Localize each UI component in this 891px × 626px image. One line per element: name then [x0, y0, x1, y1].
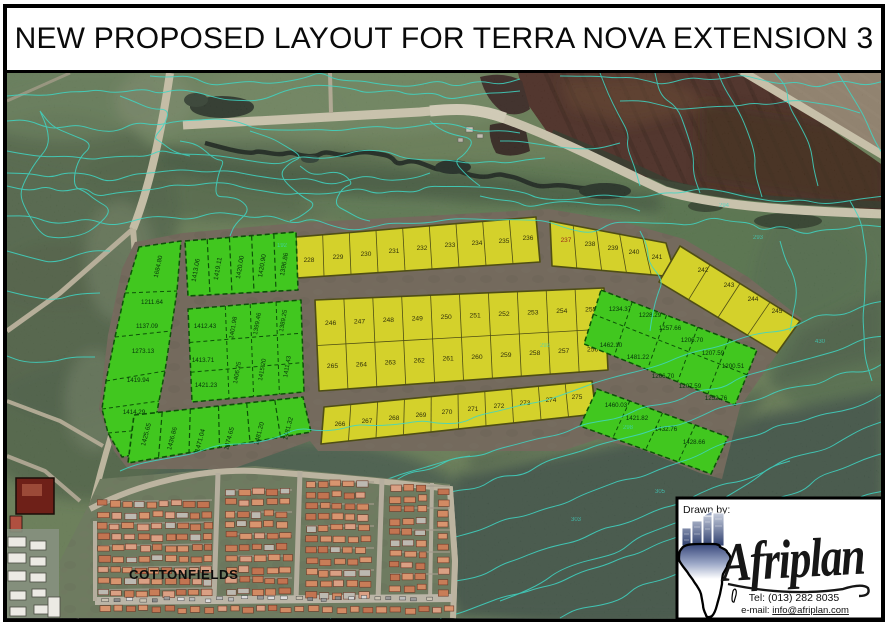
svg-text:1421.23: 1421.23 — [195, 382, 218, 389]
svg-text:1462.10: 1462.10 — [600, 342, 623, 349]
svg-text:292: 292 — [540, 343, 551, 349]
svg-text:1228.29: 1228.29 — [639, 312, 662, 319]
svg-text:Tel: (013) 282 8035: Tel: (013) 282 8035 — [749, 592, 840, 604]
svg-text:247: 247 — [354, 318, 365, 325]
svg-text:237: 237 — [561, 237, 572, 244]
svg-text:262: 262 — [414, 358, 425, 365]
svg-text:Afriplan: Afriplan — [718, 525, 866, 593]
svg-text:1432.76: 1432.76 — [655, 426, 678, 433]
svg-text:265: 265 — [327, 363, 338, 370]
svg-text:1273.13: 1273.13 — [132, 348, 155, 355]
svg-text:1211.64: 1211.64 — [141, 299, 163, 306]
svg-text:1421.82: 1421.82 — [626, 415, 649, 422]
svg-text:1207.59: 1207.59 — [679, 383, 702, 390]
svg-text:264: 264 — [356, 361, 367, 368]
svg-text:229: 229 — [333, 254, 344, 261]
svg-text:1419.94: 1419.94 — [127, 377, 150, 384]
svg-text:271: 271 — [468, 406, 479, 413]
svg-text:241: 241 — [652, 254, 663, 261]
svg-text:COTTONFIELDS: COTTONFIELDS — [129, 567, 239, 582]
svg-text:263: 263 — [385, 359, 396, 366]
svg-text:1257.66: 1257.66 — [659, 325, 682, 332]
svg-text:270: 270 — [442, 409, 453, 416]
svg-text:239: 239 — [608, 245, 619, 252]
svg-text:267: 267 — [362, 418, 373, 425]
svg-text:1137.09: 1137.09 — [136, 323, 158, 330]
svg-text:274: 274 — [546, 397, 557, 404]
svg-text:293: 293 — [753, 235, 764, 241]
svg-text:232: 232 — [417, 245, 428, 252]
svg-text:e-mail: info@afriplan.com: e-mail: info@afriplan.com — [741, 605, 849, 616]
svg-text:258: 258 — [529, 350, 540, 357]
svg-text:238: 238 — [585, 241, 596, 248]
svg-text:260: 260 — [471, 354, 482, 361]
svg-text:266: 266 — [335, 421, 346, 428]
svg-text:257: 257 — [558, 348, 569, 355]
svg-text:1481.22: 1481.22 — [627, 354, 650, 361]
svg-text:275: 275 — [572, 394, 583, 401]
svg-text:245: 245 — [772, 308, 783, 315]
svg-text:254: 254 — [556, 308, 567, 315]
svg-text:269: 269 — [416, 412, 427, 419]
svg-text:1207.59: 1207.59 — [702, 350, 725, 357]
svg-text:1413.71: 1413.71 — [192, 357, 215, 364]
svg-text:1252.76: 1252.76 — [705, 395, 728, 402]
svg-text:259: 259 — [500, 352, 511, 359]
svg-text:268: 268 — [389, 415, 400, 422]
svg-text:294: 294 — [719, 203, 730, 209]
svg-text:231: 231 — [389, 248, 400, 255]
svg-text:1200.51: 1200.51 — [722, 363, 745, 370]
svg-text:192: 192 — [277, 243, 288, 249]
svg-text:251: 251 — [470, 313, 481, 320]
svg-text:236: 236 — [523, 235, 534, 242]
svg-text:235: 235 — [499, 238, 510, 245]
svg-text:244: 244 — [748, 296, 759, 303]
svg-text:252: 252 — [498, 311, 509, 318]
svg-text:430: 430 — [815, 339, 826, 345]
svg-text:272: 272 — [494, 403, 505, 410]
svg-text:1460.03: 1460.03 — [605, 402, 628, 409]
svg-text:228: 228 — [304, 257, 315, 264]
svg-text:250: 250 — [441, 314, 452, 321]
svg-text:261: 261 — [443, 356, 454, 363]
svg-text:240: 240 — [629, 249, 640, 256]
svg-text:1428.66: 1428.66 — [683, 439, 706, 446]
svg-text:1206.70: 1206.70 — [681, 337, 704, 344]
svg-text:248: 248 — [383, 317, 394, 324]
svg-text:305: 305 — [655, 489, 666, 495]
svg-text:234: 234 — [472, 240, 483, 247]
svg-text:1234.37: 1234.37 — [609, 306, 632, 313]
svg-text:233: 233 — [445, 242, 456, 249]
svg-text:246: 246 — [325, 320, 336, 327]
svg-text:242: 242 — [698, 267, 709, 274]
svg-text:1412.43: 1412.43 — [194, 323, 217, 330]
svg-text:303: 303 — [571, 517, 582, 523]
svg-text:243: 243 — [724, 282, 735, 289]
svg-text:1206.70: 1206.70 — [652, 373, 675, 380]
svg-text:249: 249 — [412, 315, 423, 322]
svg-text:230: 230 — [361, 251, 372, 258]
svg-text:253: 253 — [527, 310, 538, 317]
svg-text:298: 298 — [623, 425, 634, 431]
